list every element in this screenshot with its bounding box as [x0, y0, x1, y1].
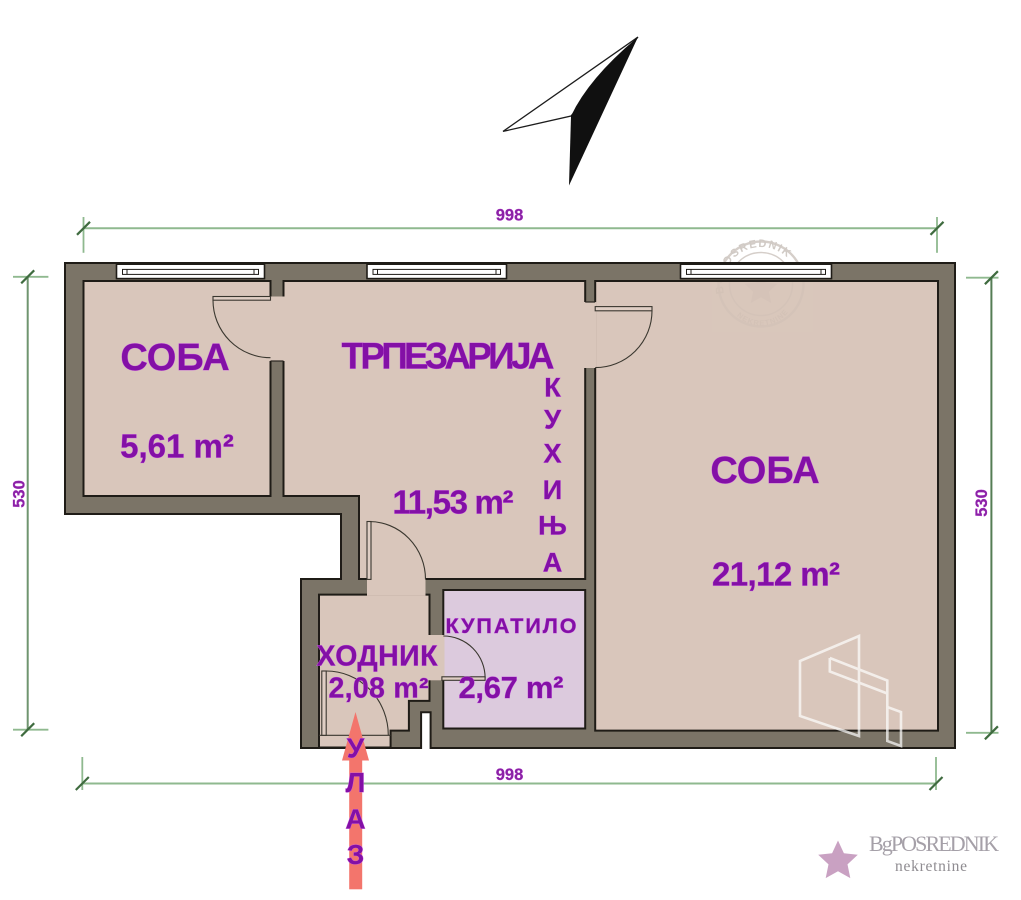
svg-text:И: И [543, 475, 562, 505]
svg-text:СОБА: СОБА [120, 337, 229, 379]
svg-text:А: А [543, 548, 563, 578]
svg-text:У: У [347, 733, 365, 764]
svg-text:5,61 m²: 5,61 m² [120, 428, 234, 465]
svg-text:ТРПЕЗАРИЈА: ТРПЕЗАРИЈА [342, 336, 555, 377]
svg-text:КУПАТИЛО: КУПАТИЛО [446, 614, 577, 638]
svg-text:530: 530 [973, 489, 991, 517]
svg-text:К: К [544, 373, 561, 403]
svg-text:З: З [347, 839, 365, 870]
svg-text:ХОДНИК: ХОДНИК [317, 641, 439, 673]
svg-text:21,12 m²: 21,12 m² [712, 556, 840, 593]
svg-text:998: 998 [496, 207, 524, 225]
svg-text:Њ: Њ [538, 511, 567, 541]
svg-text:2,08 m²: 2,08 m² [329, 673, 429, 705]
svg-text:Х: Х [543, 439, 561, 469]
svg-text:998: 998 [496, 766, 524, 784]
svg-text:Л: Л [346, 767, 366, 798]
svg-text:А: А [345, 804, 365, 835]
svg-text:2,67 m²: 2,67 m² [459, 670, 564, 705]
svg-text:СОБА: СОБА [710, 450, 819, 492]
svg-text:BgPOSREDNIK: BgPOSREDNIK [869, 831, 999, 856]
svg-text:530: 530 [11, 480, 29, 508]
svg-text:nekretnine: nekretnine [895, 858, 967, 875]
svg-text:11,53 m²: 11,53 m² [393, 484, 514, 521]
svg-text:У: У [544, 405, 562, 435]
